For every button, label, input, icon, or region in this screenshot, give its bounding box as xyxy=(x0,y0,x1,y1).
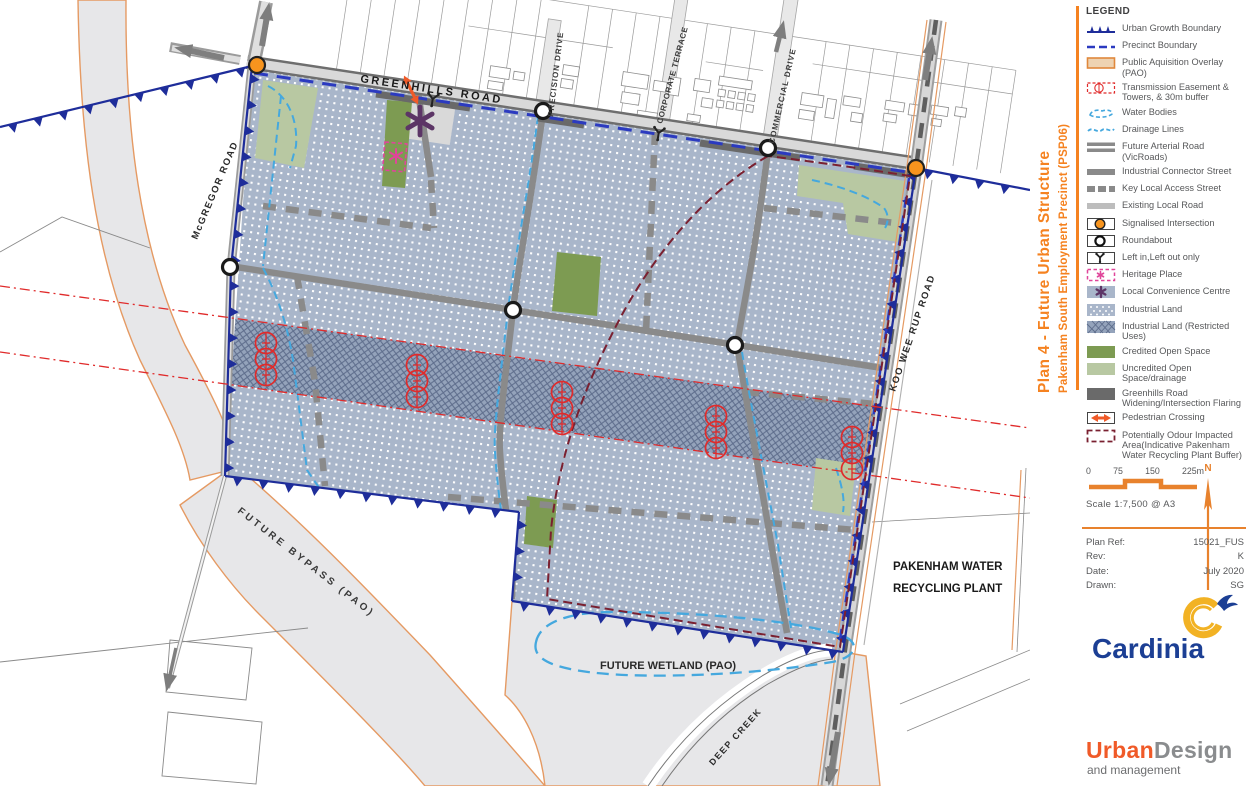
legend-item-label: Key Local Access Street xyxy=(1122,182,1221,193)
cardinia-wordmark: Cardinia xyxy=(1092,633,1204,664)
plan-ref-value: SG xyxy=(1230,579,1244,593)
legend-swatch-signal-icon xyxy=(1086,217,1116,231)
legend-swatch-existing-icon xyxy=(1086,199,1116,213)
scale-tick: 150 xyxy=(1145,466,1160,476)
legend-item: Future Arterial Road (VicRoads) xyxy=(1086,140,1248,162)
legend-item-label: Local Convenience Centre xyxy=(1122,285,1230,296)
legend-item-label: Industrial Land (Restricted Uses) xyxy=(1122,320,1248,342)
scale-bar-graphic xyxy=(1086,477,1212,491)
legend-item: Credited Open Space xyxy=(1086,345,1248,359)
legend-item-label: Industrial Land xyxy=(1122,303,1182,314)
legend-swatch-industrial-icon xyxy=(1086,303,1116,317)
legend-item: Pedestrian Crossing xyxy=(1086,411,1248,425)
legend-item: Water Bodies xyxy=(1086,106,1248,120)
legend-item: Local Convenience Centre xyxy=(1086,285,1248,299)
legend-item-label: Greenhills Road Widening/Intersection Fl… xyxy=(1122,387,1248,409)
legend-item: Roundabout xyxy=(1086,234,1248,248)
legend-item: Industrial Land (Restricted Uses) xyxy=(1086,320,1248,342)
urban-wordmark: Urban xyxy=(1086,737,1154,763)
title-divider xyxy=(1076,6,1079,390)
legend-swatch-arterial-icon xyxy=(1086,140,1116,154)
legend-swatch-connector-icon xyxy=(1086,165,1116,179)
plan-map: GREENHILLS ROAD McGREGOR ROAD KOO WEE RU… xyxy=(0,0,1030,786)
urbandesign-logo: UrbanDesign xyxy=(1086,737,1232,764)
legend-item-label: Precinct Boundary xyxy=(1122,39,1197,50)
plan-ref-value: K xyxy=(1238,550,1244,564)
legend-item: Industrial Land xyxy=(1086,303,1248,317)
legend-swatch-drainage-icon xyxy=(1086,123,1116,137)
plan-ref-row: Rev:K xyxy=(1086,550,1244,564)
legend-item-label: Credited Open Space xyxy=(1122,345,1210,356)
legend-item: Left in,Left out only xyxy=(1086,251,1248,265)
legend-item: Drainage Lines xyxy=(1086,123,1248,137)
legend-swatch-heritage-icon xyxy=(1086,268,1116,282)
plan-ref-block: Plan Ref:15021_FUSRev:KDate:July 2020Dra… xyxy=(1086,536,1244,593)
plan-ref-label: Rev: xyxy=(1086,550,1106,564)
scale-bar: 0 75 150 225m Scale 1:7,500 @ A3 xyxy=(1086,466,1214,510)
legend-item: Transmission Easement & Towers, & 30m bu… xyxy=(1086,81,1248,103)
legend-item-label: Industrial Connector Street xyxy=(1122,165,1231,176)
legend-swatch-pedestrian-icon xyxy=(1086,411,1116,425)
legend-item-label: Water Bodies xyxy=(1122,106,1177,117)
legend-item-label: Drainage Lines xyxy=(1122,123,1184,134)
legend-swatch-water-icon xyxy=(1086,106,1116,120)
management-tagline: and management xyxy=(1087,763,1180,777)
scale-tick: 75 xyxy=(1113,466,1123,476)
legend-item: Urban Growth Boundary xyxy=(1086,22,1248,36)
legend-item-label: Pedestrian Crossing xyxy=(1122,411,1205,422)
plan-ref-row: Plan Ref:15021_FUS xyxy=(1086,536,1244,550)
plan-ref-row: Date:July 2020 xyxy=(1086,565,1244,579)
legend-item-label: Urban Growth Boundary xyxy=(1122,22,1221,33)
cardinia-logo: Cardinia xyxy=(1090,592,1242,670)
label-recycling-plant-1: PAKENHAM WATER xyxy=(893,561,1003,573)
plan-ref-value: July 2020 xyxy=(1203,565,1244,579)
legend-swatch-widening-icon xyxy=(1086,387,1116,401)
legend-item-label: Roundabout xyxy=(1122,234,1172,245)
legend-item: Existing Local Road xyxy=(1086,199,1248,213)
legend-swatch-uncredited-icon xyxy=(1086,362,1116,376)
legend-item: Precinct Boundary xyxy=(1086,39,1248,53)
legend-divider xyxy=(1082,527,1246,529)
legend-swatch-leftinout-icon xyxy=(1086,251,1116,265)
legend-heading: LEGEND xyxy=(1086,6,1248,17)
plan-ref-label: Plan Ref: xyxy=(1086,536,1125,550)
legend-swatch-precinct-icon xyxy=(1086,39,1116,53)
legend-item-label: Potentially Odour Impacted Area(Indicati… xyxy=(1122,429,1248,461)
legend-item: Signalised Intersection xyxy=(1086,217,1248,231)
legend-item-label: Public Aquisition Overlay (PAO) xyxy=(1122,56,1248,78)
legend-item-label: Signalised Intersection xyxy=(1122,217,1214,228)
design-wordmark: Design xyxy=(1154,737,1232,763)
north-label: N xyxy=(1204,463,1211,474)
legend: LEGEND Urban Growth BoundaryPrecinct Bou… xyxy=(1086,6,1248,464)
plan-ref-label: Drawn: xyxy=(1086,579,1116,593)
cardinia-swirl-icon xyxy=(1187,595,1238,635)
label-recycling-plant-2: RECYCLING PLANT xyxy=(893,583,1002,595)
legend-item: Uncredited Open Space/drainage xyxy=(1086,362,1248,384)
future-bypass-pao xyxy=(180,465,545,786)
legend-swatch-transmission-icon xyxy=(1086,81,1116,95)
plan-ref-label: Date: xyxy=(1086,565,1109,579)
legend-item-label: Transmission Easement & Towers, & 30m bu… xyxy=(1122,81,1248,103)
legend-swatch-lcc-icon xyxy=(1086,285,1116,299)
bird-icon xyxy=(1217,595,1238,611)
plan-title: Plan 4 - Future Urban Structure xyxy=(1036,151,1054,393)
plan-ref-value: 15021_FUS xyxy=(1193,536,1244,550)
plan-ref-row: Drawn:SG xyxy=(1086,579,1244,593)
legend-item-label: Future Arterial Road (VicRoads) xyxy=(1122,140,1248,162)
legend-item-label: Uncredited Open Space/drainage xyxy=(1122,362,1248,384)
legend-swatch-pao-icon xyxy=(1086,56,1116,70)
plan-map-panel: GREENHILLS ROAD McGREGOR ROAD KOO WEE RU… xyxy=(0,0,1030,786)
legend-swatch-roundabout-icon xyxy=(1086,234,1116,248)
plan-subtitle: Pakenham South Employment Precinct (PSP0… xyxy=(1058,124,1070,393)
legend-item: Key Local Access Street xyxy=(1086,182,1248,196)
scale-tick: 0 xyxy=(1086,466,1091,476)
legend-item: Potentially Odour Impacted Area(Indicati… xyxy=(1086,429,1248,461)
legend-swatch-credited-icon xyxy=(1086,345,1116,359)
legend-swatch-odour-icon xyxy=(1086,429,1116,443)
legend-item: Public Aquisition Overlay (PAO) xyxy=(1086,56,1248,78)
legend-item: Greenhills Road Widening/Intersection Fl… xyxy=(1086,387,1248,409)
scale-caption: Scale 1:7,500 @ A3 xyxy=(1086,499,1214,510)
label-future-wetland: FUTURE WETLAND (PAO) xyxy=(600,660,736,672)
legend-item-label: Existing Local Road xyxy=(1122,199,1203,210)
legend-item: Heritage Place xyxy=(1086,268,1248,282)
legend-swatch-keyaccess-icon xyxy=(1086,182,1116,196)
legend-item: Industrial Connector Street xyxy=(1086,165,1248,179)
legend-item-label: Left in,Left out only xyxy=(1122,251,1200,262)
legend-swatch-ugb-icon xyxy=(1086,22,1116,36)
legend-swatch-restricted-icon xyxy=(1086,320,1116,334)
legend-item-label: Heritage Place xyxy=(1122,268,1182,279)
